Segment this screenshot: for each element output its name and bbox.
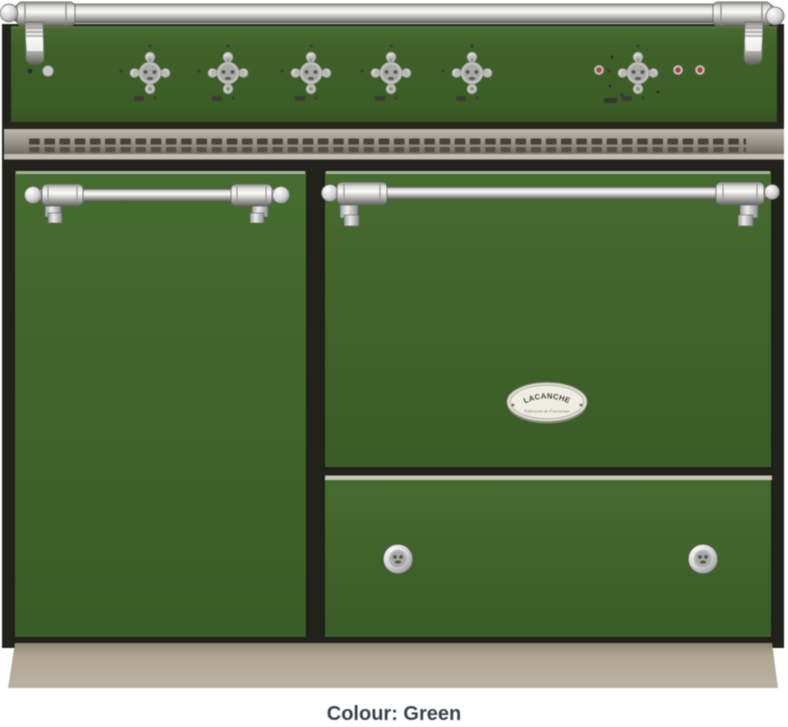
svg-text:Fabricant de Fourneaux: Fabricant de Fourneaux: [523, 409, 569, 414]
